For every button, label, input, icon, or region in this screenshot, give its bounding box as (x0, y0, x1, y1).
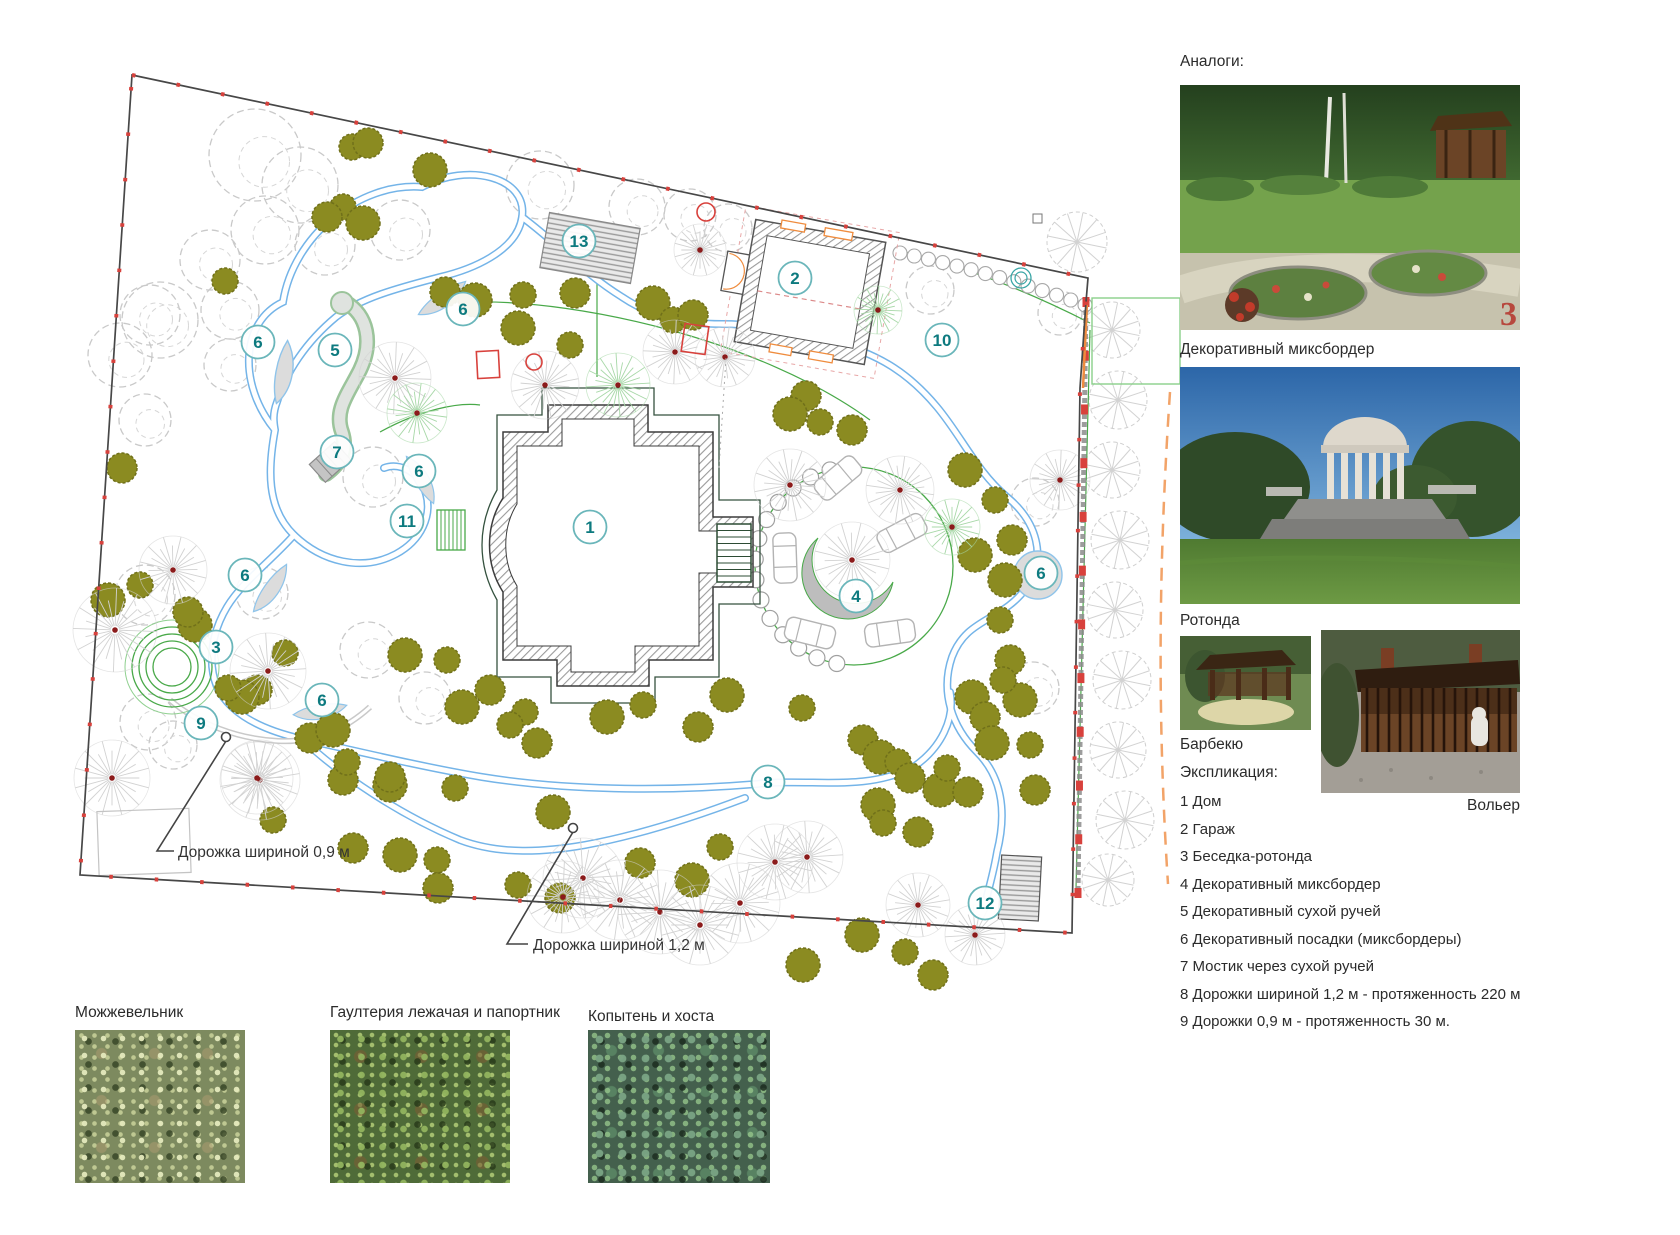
svg-text:3: 3 (1500, 296, 1517, 330)
fence-post (1075, 834, 1082, 844)
plan-marker-6: 6 (1025, 557, 1058, 590)
tree-olive (789, 695, 815, 721)
tree-olive (895, 763, 925, 793)
plan-marker-2: 2 (779, 262, 812, 295)
explication-item: 8 Дорожки шириной 1,2 м - протяженность … (1180, 981, 1520, 1009)
explication-item: 2 Гараж (1180, 816, 1520, 844)
analogs-label: Аналоги: (1180, 53, 1244, 71)
fence-post (1077, 727, 1084, 737)
rotunda-photo (1180, 367, 1520, 604)
barbecue-photo (1180, 636, 1311, 730)
plan-marker-3: 3 (200, 631, 233, 664)
plan-marker-6: 6 (447, 293, 480, 326)
rotunda-circle (146, 641, 198, 693)
tree-olive (982, 487, 1008, 513)
svg-text:4: 4 (851, 587, 861, 606)
shrub-cloud-inner (165, 735, 191, 761)
analog-garden-photo: 3 (1180, 85, 1520, 330)
plan-marker-5: 5 (319, 334, 352, 367)
kennel-photo (1321, 630, 1520, 793)
tree-olive (997, 525, 1027, 555)
tree-olive (625, 848, 655, 878)
shrub-cloud (399, 672, 451, 724)
tree-outside-fence (1087, 582, 1143, 638)
explication-item: 3 Беседка-ротонда (1180, 843, 1520, 871)
svg-text:Дорожка шириной 0,9 м: Дорожка шириной 0,9 м (178, 844, 350, 861)
tree-olive (807, 409, 833, 435)
tree-olive (545, 883, 575, 913)
tree-olive (383, 838, 417, 872)
tree-olive (423, 873, 453, 903)
fence-post (1080, 458, 1087, 468)
explication-item: 5 Декоративный сухой ручей (1180, 898, 1520, 926)
svg-text:10: 10 (933, 331, 952, 350)
tree-olive (707, 834, 733, 860)
fence-post (1077, 673, 1084, 683)
svg-text:5: 5 (330, 341, 339, 360)
hedge-shrub (1035, 284, 1049, 298)
shrub-cloud-inner (528, 171, 565, 208)
plan-marker-1: 1 (574, 511, 607, 544)
shrub-cloud-inner (358, 639, 389, 670)
svg-text:6: 6 (458, 300, 467, 319)
plan-marker-6: 6 (306, 684, 339, 717)
tree-olive (892, 939, 918, 965)
tree-olive (510, 282, 536, 308)
svg-text:7: 7 (332, 443, 341, 462)
rotunda-illustration (1180, 367, 1520, 604)
mixborder-label: Декоративный миксбордер (1180, 341, 1374, 359)
tree-existing (359, 342, 431, 414)
shrub-cloud-inner (390, 218, 423, 251)
shrub-cloud-inner (416, 688, 445, 717)
tree-existing (511, 351, 579, 419)
tree-olive (953, 777, 983, 807)
parking-edge-shrub (829, 655, 845, 671)
hedge-shrub (893, 246, 907, 260)
small-marker-square (1033, 214, 1042, 223)
tree-outside-fence (1047, 212, 1107, 272)
tree-olive (975, 726, 1009, 760)
tree-olive (522, 728, 552, 758)
svg-text:13: 13 (570, 232, 589, 251)
shrub-cloud-inner (147, 305, 189, 347)
tree-olive (375, 762, 405, 792)
explication-item: 1 Дом (1180, 788, 1520, 816)
tree-outside-fence (1084, 442, 1140, 498)
paved-pad-12 (998, 855, 1041, 921)
explication-item: 7 Мостик через сухой ручей (1180, 953, 1520, 981)
barbecue-label: Барбекю (1180, 736, 1243, 754)
tree-existing (695, 327, 755, 387)
plant-label-gaultheria: Гаултерия лежачая и папортник (330, 1004, 560, 1022)
rotunda-circle (139, 634, 205, 700)
plant-label-hosta: Копытень и хоста (588, 1008, 714, 1026)
fence-post (1080, 512, 1087, 522)
tree-olive (445, 690, 479, 724)
kennel-illustration (1321, 630, 1520, 793)
hedge-shrub (907, 249, 921, 263)
tree-olive (388, 638, 422, 672)
plan-marker-11: 11 (391, 505, 424, 538)
hedge-shrub (950, 259, 964, 273)
parking-edge-shrub (809, 650, 825, 666)
hedge-shrub (1064, 293, 1078, 307)
shrub-cloud (906, 266, 954, 314)
tree-outside-fence (1090, 722, 1146, 778)
tree-olive (173, 597, 203, 627)
tree-outside-fence (1091, 511, 1149, 569)
tree-olive (870, 810, 896, 836)
plant-label-juniper: Можжевельник (75, 1004, 183, 1022)
lamp-square (476, 350, 499, 378)
shrub-cloud (120, 694, 176, 750)
plan-marker-12: 12 (969, 887, 1002, 920)
plan-marker-6: 6 (229, 559, 262, 592)
fence-post (1078, 619, 1085, 629)
explication-item: 9 Дорожки 0,9 м - протяженность 30 м. (1180, 1008, 1520, 1036)
lamp-circle (526, 354, 542, 370)
shrub-cloud-inner (922, 280, 948, 306)
svg-text:2: 2 (790, 269, 799, 288)
tree-existing (924, 499, 980, 555)
svg-text:1: 1 (585, 518, 594, 537)
plan-marker-7: 7 (321, 436, 354, 469)
tree-olive (316, 713, 350, 747)
plan-marker-6: 6 (403, 455, 436, 488)
hedge-shrub (964, 263, 978, 277)
tree-olive (845, 918, 879, 952)
analog-garden-illustration: 3 (1180, 85, 1520, 330)
svg-text:3: 3 (211, 638, 220, 657)
tree-outside-fence (1089, 371, 1147, 429)
tree-olive (312, 202, 342, 232)
tree-olive (903, 817, 933, 847)
svg-text:11: 11 (398, 512, 416, 531)
tree-olive (215, 675, 241, 701)
tree-olive (988, 563, 1022, 597)
tree-olive (710, 678, 744, 712)
shrub-cloud-inner (315, 233, 348, 266)
svg-text:Дорожка шириной 1,2 м: Дорожка шириной 1,2 м (533, 937, 705, 954)
shrub-cloud-inner (720, 218, 746, 244)
plan-marker-9: 9 (185, 707, 218, 740)
tree-olive (353, 128, 383, 158)
tree-olive (786, 948, 820, 982)
shrub-cloud (231, 196, 299, 264)
explication-list: 1 Дом2 Гараж3 Беседка-ротонда4 Декоратив… (1180, 788, 1520, 1036)
site-plan: 1234566666678910111213 Дорожка шириной 0… (0, 0, 1200, 1000)
shrub-cloud-inner (1027, 492, 1053, 518)
hedge-shrub (993, 271, 1007, 285)
barbecue-illustration (1180, 636, 1311, 730)
fence-post (1075, 888, 1082, 898)
garden-stairs (437, 510, 465, 550)
tree-olive (107, 453, 137, 483)
tree-outside-fence (1096, 791, 1154, 849)
gaultheria-photo (330, 1030, 510, 1183)
tree-olive (434, 647, 460, 673)
rotunda-label: Ротонда (1180, 612, 1240, 630)
fence-post (1081, 404, 1088, 414)
tree-existing (139, 536, 207, 604)
explication-item: 6 Декоративный посадки (миксбордеры) (1180, 926, 1520, 954)
tree-olive (918, 960, 948, 990)
juniper-photo (75, 1030, 245, 1183)
tree-olive (334, 749, 360, 775)
plan-marker-10: 10 (926, 324, 959, 357)
plan-marker-13: 13 (563, 225, 596, 258)
tree-existing (737, 824, 813, 900)
hedge-shrub (936, 256, 950, 270)
tree-olive (536, 795, 570, 829)
car (773, 533, 798, 584)
tree-existing (527, 861, 599, 933)
shrub-cloud (119, 394, 171, 446)
tree-existing (674, 224, 726, 276)
tree-olive (1017, 732, 1043, 758)
tree-olive (424, 847, 450, 873)
fence-post (1076, 781, 1083, 791)
tree-olive (837, 415, 867, 445)
svg-text:9: 9 (196, 714, 205, 733)
svg-text:6: 6 (414, 462, 423, 481)
tree-olive (683, 712, 713, 742)
tree-olive (501, 311, 535, 345)
hedge-shrub (1050, 288, 1064, 302)
tree-olive (475, 675, 505, 705)
plan-marker-8: 8 (752, 766, 785, 799)
tree-olive (212, 268, 238, 294)
hedge-shrub (978, 267, 992, 281)
tree-olive (560, 278, 590, 308)
svg-text:6: 6 (317, 691, 326, 710)
tree-olive (948, 453, 982, 487)
design-board: { "right_column": { "analogs_label": "Ан… (0, 0, 1680, 1235)
hosta-photo (588, 1030, 770, 1183)
hedge-shrub (1007, 275, 1021, 289)
tree-outside-fence (1093, 651, 1151, 709)
shrub-cloud (209, 109, 301, 201)
utility-dashed-line (1161, 392, 1170, 884)
shrub-cloud-inner (136, 410, 165, 439)
shrub-cloud-inner (627, 196, 658, 227)
hedge-shrub (921, 252, 935, 266)
plan-marker-6: 6 (242, 326, 275, 359)
svg-text:12: 12 (976, 894, 995, 913)
explication-item: 4 Декоративный миксбордер (1180, 871, 1520, 899)
shrub-cloud (122, 282, 198, 358)
tree-olive (346, 206, 380, 240)
explication-title: Экспликация: (1180, 764, 1278, 782)
shrub-cloud (340, 622, 396, 678)
tree-olive (557, 332, 583, 358)
tree-outside-fence (1082, 854, 1134, 906)
parking-edge-shrub (753, 592, 769, 608)
shrub-cloud-inner (138, 711, 169, 742)
svg-text:8: 8 (763, 773, 772, 792)
tree-olive (413, 153, 447, 187)
svg-text:6: 6 (240, 566, 249, 585)
tree-olive (497, 712, 523, 738)
tree-olive (675, 863, 709, 897)
tree-olive (442, 775, 468, 801)
shrub-cloud-inner (253, 216, 290, 253)
tree-olive (990, 667, 1016, 693)
tree-existing (886, 873, 950, 937)
lamp-circle (697, 203, 715, 221)
svg-text:6: 6 (253, 333, 262, 352)
tree-olive (1020, 775, 1050, 805)
tree-olive (773, 397, 807, 431)
parking-edge-shrub (759, 512, 775, 528)
dry-stream-head (331, 292, 353, 314)
hedge-shrub (1021, 279, 1035, 293)
fence-post (1079, 566, 1086, 576)
parking-edge-shrub (762, 610, 778, 626)
shrub-cloud-inner (239, 137, 290, 188)
rotunda-circle (153, 648, 191, 686)
plan-marker-4: 4 (840, 580, 873, 613)
shrub-cloud-inner (1052, 304, 1076, 328)
entry-stairs (717, 524, 751, 582)
tree-olive (630, 692, 656, 718)
tree-olive (987, 607, 1013, 633)
shrub-cloud-inner (220, 298, 252, 330)
tree-existing (221, 742, 293, 814)
shrub-cloud (88, 323, 152, 387)
tree-olive (934, 755, 960, 781)
tree-olive (590, 700, 624, 734)
svg-text:6: 6 (1036, 564, 1045, 583)
